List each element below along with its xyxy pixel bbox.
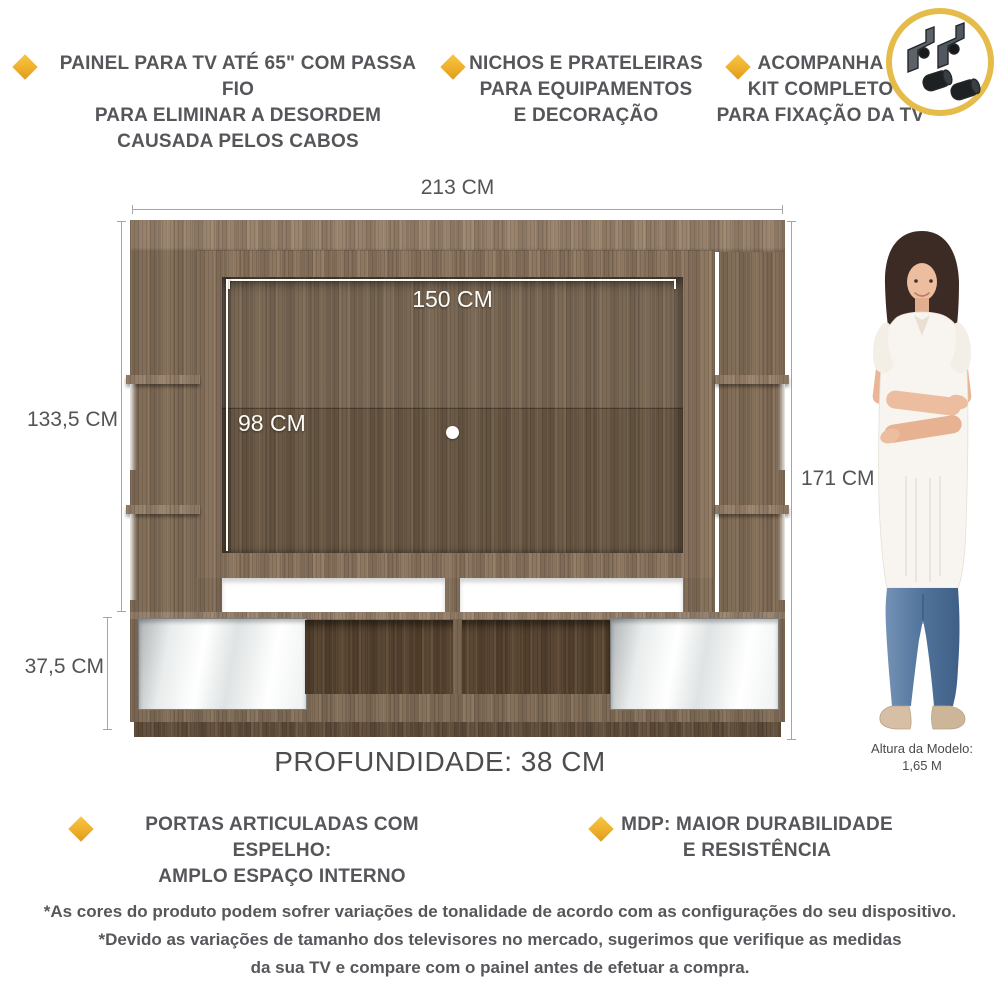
niche-divider — [453, 620, 462, 694]
base-cabinet — [130, 612, 785, 722]
diamond-bullet-icon — [12, 54, 37, 79]
feature-line: MDP: MAIOR DURABILIDADE — [616, 812, 898, 838]
feature-line: PARA ELIMINAR A DESORDEM — [42, 103, 434, 129]
dimension-line-panel-height — [121, 221, 122, 612]
right-shelf-lower — [715, 505, 789, 514]
left-shelf-lower — [126, 505, 200, 514]
top-board — [130, 220, 785, 252]
left-niche-opening — [130, 514, 137, 600]
right-shelf-upper — [715, 375, 789, 384]
feature-niches: NICHOS E PRATELEIRAS PARA EQUIPAMENTOS E… — [466, 51, 706, 129]
left-shelf-upper — [126, 375, 200, 384]
dimension-side-height: 133,5 CM — [16, 408, 118, 432]
dimension-inner-height: 98 CM — [238, 410, 306, 437]
caption-line: Altura da Modelo: — [852, 740, 992, 757]
diamond-bullet-icon — [440, 54, 465, 79]
tv-mount-kit-badge — [884, 6, 996, 118]
feature-tv-panel: PAINEL PARA TV ATÉ 65" COM PASSA FIO PAR… — [42, 51, 434, 155]
model-illustration — [846, 226, 998, 740]
diamond-bullet-icon — [68, 816, 93, 841]
feature-line: E DECORAÇÃO — [466, 103, 706, 129]
open-gap-left — [222, 578, 445, 612]
disclaimer-line: da sua TV e compare com o painel antes d… — [30, 954, 970, 982]
panel-seam — [222, 408, 683, 409]
product-infographic: PAINEL PARA TV ATÉ 65" COM PASSA FIO PAR… — [0, 0, 1000, 1000]
dimension-line-width — [132, 209, 783, 210]
diamond-bullet-icon — [588, 816, 613, 841]
tv-mount-kit-icon — [884, 6, 996, 118]
mirror-door-left — [138, 618, 307, 710]
right-tower — [719, 250, 785, 612]
dimension-line-total-height — [791, 221, 792, 740]
left-niche-opening — [130, 384, 137, 470]
dimension-base-height: 37,5 CM — [10, 655, 104, 679]
disclaimer-line: *Devido as variações de tamanho dos tele… — [30, 926, 970, 954]
feature-line: PORTAS ARTICULADAS COM ESPELHO: — [96, 812, 468, 864]
mirror-door-right — [610, 618, 779, 710]
feature-mdp: MDP: MAIOR DURABILIDADE E RESISTÊNCIA — [616, 812, 898, 864]
caption-line: 1,65 M — [852, 757, 992, 774]
measure-line-98 — [226, 279, 228, 551]
plinth — [134, 722, 781, 737]
dimension-line-base-height — [107, 617, 108, 730]
feature-line: CAUSADA PELOS CABOS — [42, 129, 434, 155]
open-niche-box — [305, 620, 610, 694]
feature-line: NICHOS E PRATELEIRAS — [466, 51, 706, 77]
open-gap-right — [460, 578, 683, 612]
right-niche-opening — [778, 384, 785, 470]
feature-line: AMPLO ESPAÇO INTERNO — [96, 864, 468, 890]
disclaimer: *As cores do produto podem sofrer variaç… — [30, 898, 970, 982]
dimension-inner-width: 150 CM — [222, 286, 683, 313]
right-niche-opening — [778, 514, 785, 600]
cable-hole — [446, 426, 459, 439]
tv-wall-unit: 150 CM 98 CM — [130, 220, 785, 737]
measure-line-150 — [228, 279, 676, 281]
feature-line: PARA EQUIPAMENTOS — [466, 77, 706, 103]
dimension-overall-width: 213 CM — [330, 176, 585, 200]
dimension-depth: PROFUNDIDADE: 38 CM — [240, 746, 640, 778]
feature-line: PAINEL PARA TV ATÉ 65" COM PASSA FIO — [42, 51, 434, 103]
left-tower — [130, 250, 196, 612]
feature-line: E RESISTÊNCIA — [616, 838, 898, 864]
model-height-caption: Altura da Modelo: 1,65 M — [852, 740, 992, 774]
feature-mirror-doors: PORTAS ARTICULADAS COM ESPELHO: AMPLO ES… — [96, 812, 468, 890]
disclaimer-line: *As cores do produto podem sofrer variaç… — [30, 898, 970, 926]
